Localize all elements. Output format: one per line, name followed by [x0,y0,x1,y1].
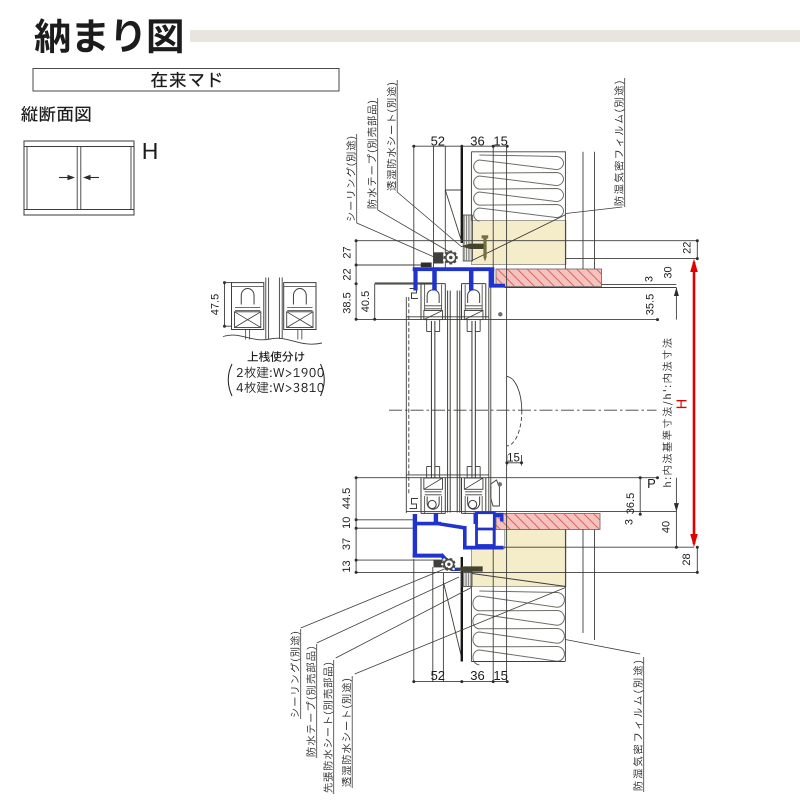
svg-text:10: 10 [341,517,353,529]
svg-text:22: 22 [682,242,694,254]
svg-text:38.5: 38.5 [342,292,354,313]
svg-text:15: 15 [493,668,507,683]
svg-text:36: 36 [470,133,484,148]
svg-text:28: 28 [681,553,693,565]
svg-text:36: 36 [470,668,484,683]
svg-text:15: 15 [493,133,507,148]
svg-text:37: 37 [341,538,353,550]
svg-text:H: H [675,399,691,409]
svg-text:3: 3 [624,519,636,525]
svg-text:13: 13 [341,560,353,572]
svg-text:22: 22 [342,268,354,280]
svg-text:52: 52 [431,133,445,148]
svg-text:52: 52 [431,668,445,683]
svg-text:40.5: 40.5 [360,291,372,312]
svg-text:44.5: 44.5 [341,488,353,509]
svg-text:P: P [647,476,656,491]
svg-text:H: H [142,138,159,164]
svg-text:35.5: 35.5 [645,294,657,315]
svg-text:40: 40 [661,521,673,533]
svg-text:36.5: 36.5 [625,493,637,514]
svg-text:47.5: 47.5 [210,294,222,315]
svg-text:3: 3 [644,276,656,282]
svg-text:27: 27 [342,246,354,258]
svg-text:30: 30 [663,266,675,278]
svg-text:15: 15 [507,452,520,464]
